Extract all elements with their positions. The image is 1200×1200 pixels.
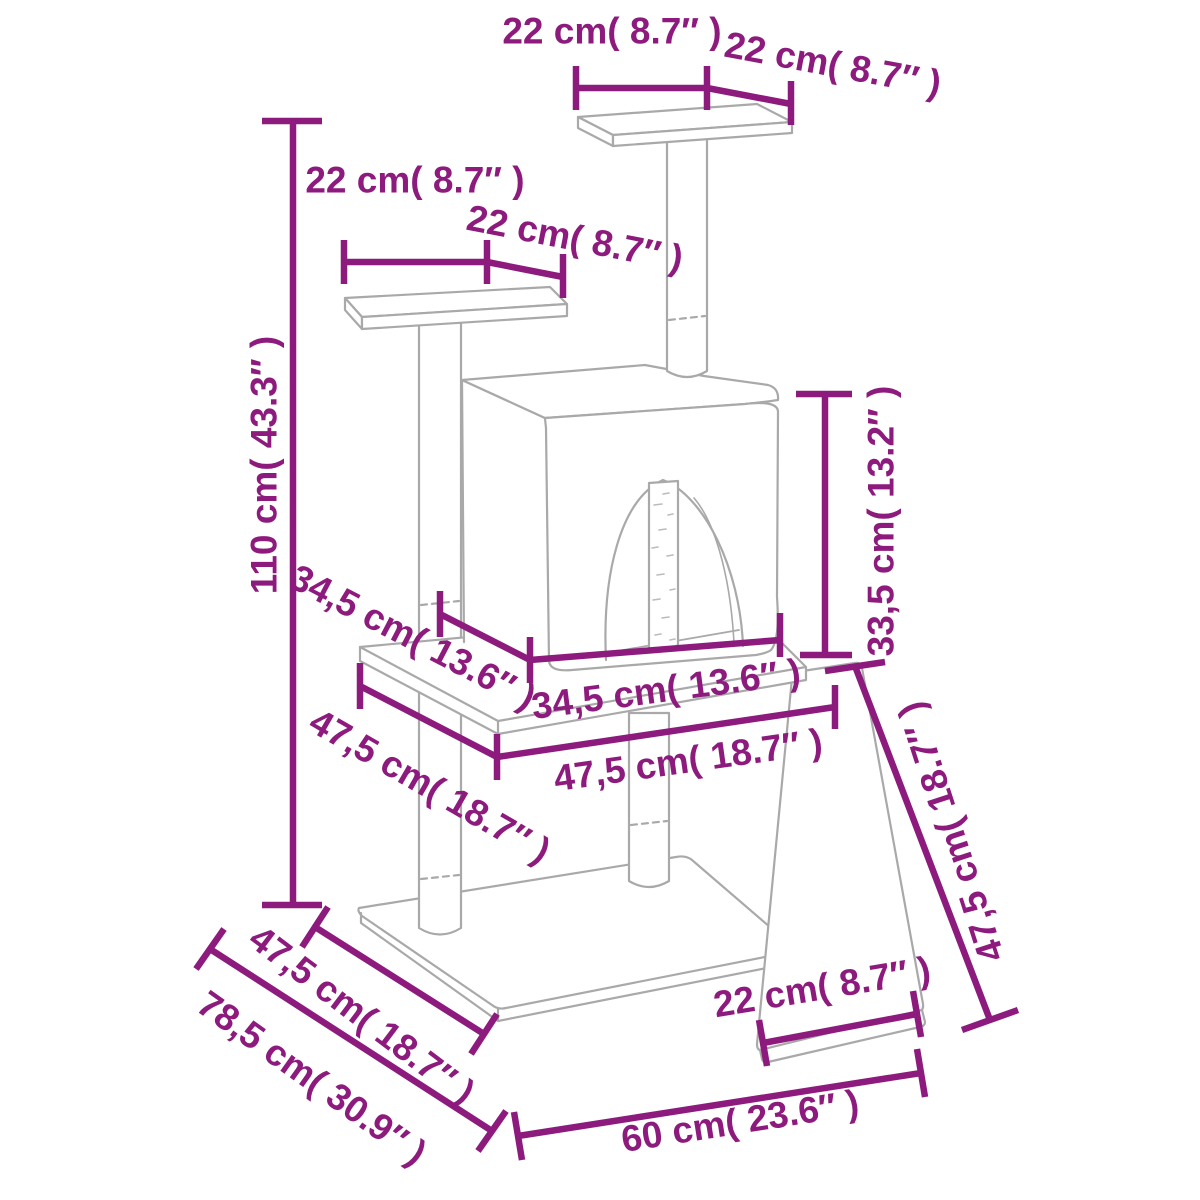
dim-label-top-platform-width: 22 cm( 8.7″ ) — [502, 13, 721, 50]
sisal-post — [649, 481, 678, 651]
left-platform — [345, 287, 567, 329]
top-platform — [578, 104, 792, 146]
condo — [462, 365, 778, 670]
cat-tree-line-drawing — [0, 0, 1200, 1200]
product-dimension-screenshot: 22 cm( 8.7″ )22 cm( 8.7″ )22 cm( 8.7″ )2… — [0, 0, 1200, 1200]
dim-label-total-height: 110 cm( 43.3″ ) — [246, 336, 283, 594]
dim-line-left-platform-width — [344, 240, 487, 284]
dim-line-top-platform-width — [576, 66, 707, 110]
dim-label-left-platform-width: 22 cm( 8.7″ ) — [305, 162, 524, 199]
dim-label-condo-height: 33,5 cm( 13.2″ ) — [863, 386, 900, 657]
dim-line-condo-height — [796, 394, 852, 655]
